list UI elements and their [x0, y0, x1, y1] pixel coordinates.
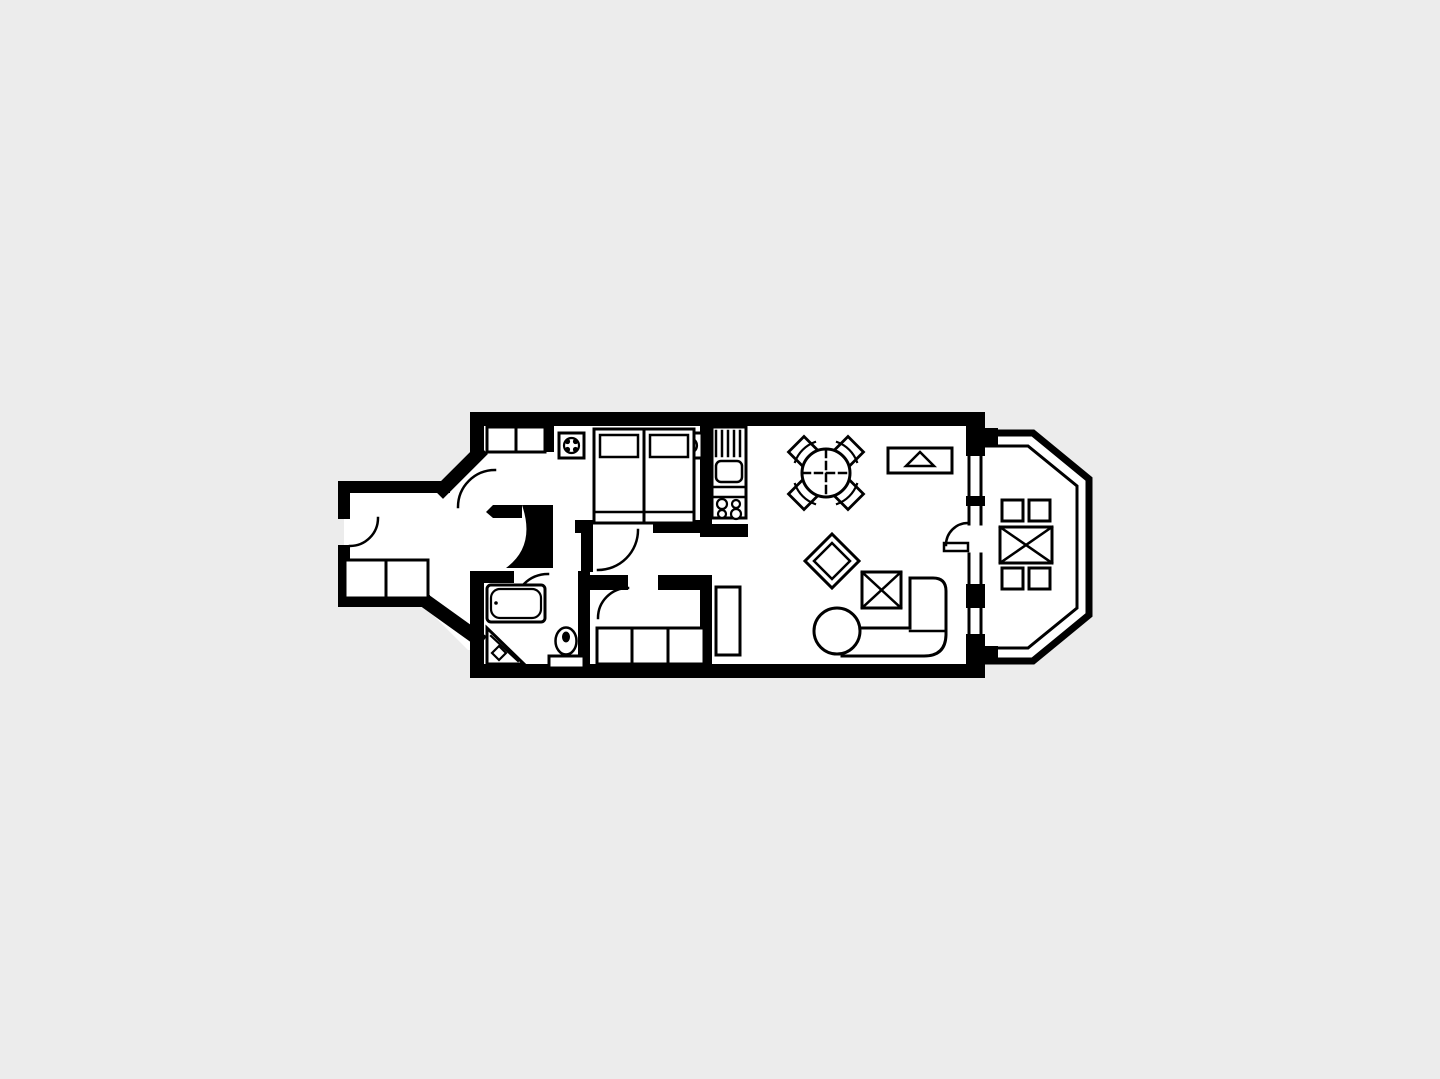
door-balcony-leaf: [944, 543, 968, 551]
floorplan-page: [0, 0, 1440, 1079]
stove-burner-1: [717, 499, 727, 509]
bay-stool-ne: [1029, 500, 1050, 521]
bathtub-inner: [491, 589, 541, 618]
toilet-bowl-inner: [562, 632, 570, 643]
wall-wing-top: [338, 481, 450, 493]
pillow-right: [650, 435, 688, 457]
kitchen-sink: [716, 461, 742, 482]
wall-top: [470, 412, 985, 426]
living-shelf: [716, 587, 740, 655]
lamp-left-dot-4: [573, 447, 578, 452]
sofa-ottoman: [814, 608, 860, 654]
lamp-left-dot-1: [565, 439, 570, 444]
room2-bed: [597, 628, 704, 664]
lamp-left-dot-3: [565, 447, 570, 452]
bathtub-faucet-dot: [494, 601, 498, 605]
floorplan-drawing: [0, 0, 1440, 1079]
wall-bathroom-left: [470, 571, 484, 678]
wall-bottom: [470, 664, 985, 678]
wall-kitchen-stub: [700, 524, 748, 537]
wall-right-seg-c: [966, 584, 985, 608]
wall-bedroom-bottom: [486, 505, 522, 518]
wall-wing-left-upper: [338, 481, 350, 519]
toilet-base: [549, 656, 584, 668]
bay-stool-nw: [1002, 500, 1023, 521]
wall-bath-room2-divider: [578, 571, 590, 664]
lamp-left-dot-2: [573, 439, 578, 444]
stove-burner-2: [732, 500, 740, 508]
stove-burner-3: [718, 510, 726, 518]
pillow-left: [600, 435, 638, 457]
bay-stool-sw: [1002, 568, 1023, 589]
bay-stool-se: [1029, 568, 1050, 589]
stove-burner-4: [731, 509, 741, 519]
wall-bathroom-top: [470, 571, 514, 583]
